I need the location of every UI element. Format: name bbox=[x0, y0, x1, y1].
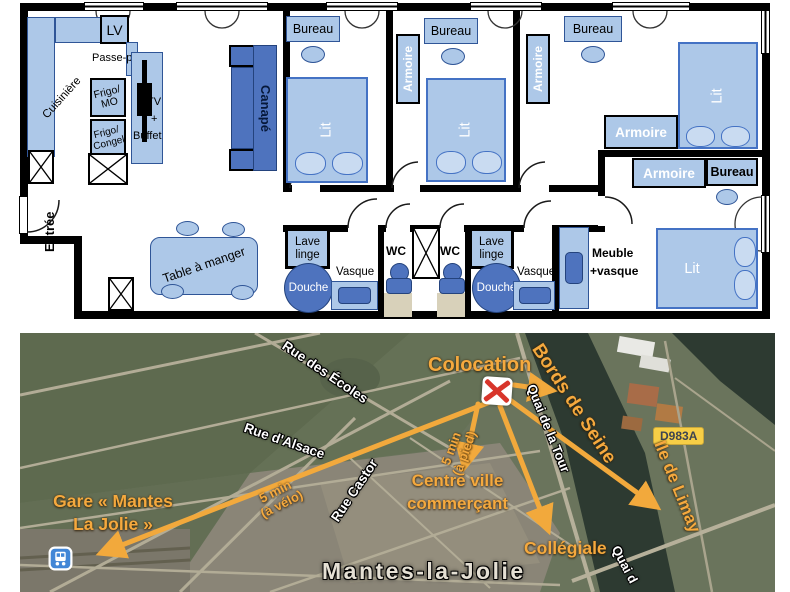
wardrobe-label: Armoire bbox=[401, 46, 415, 92]
desk-chair bbox=[581, 46, 605, 63]
pillow bbox=[686, 126, 715, 147]
desk-chair bbox=[716, 189, 738, 205]
window-bedroom3 bbox=[612, 2, 690, 11]
wardrobe-bedroom4: Armoire bbox=[632, 158, 706, 188]
poster-canvas: LV Passe-plat Cuisinière Frigo/MO Frigo/… bbox=[0, 0, 790, 592]
window-kitchen bbox=[84, 2, 144, 11]
desk-bedroom1: Bureau bbox=[286, 16, 340, 42]
vanity-label-line2: +vasque bbox=[590, 264, 638, 278]
wc2-floor-mat bbox=[437, 293, 465, 317]
pillow bbox=[436, 151, 466, 174]
wall-bottom bbox=[74, 311, 770, 319]
dishwasher-box: LV bbox=[100, 15, 129, 44]
wardrobe-label: Armoire bbox=[531, 46, 545, 92]
wall-bedroom2-left bbox=[386, 11, 393, 192]
dining-chair bbox=[176, 221, 199, 236]
column-kitchen-left bbox=[28, 150, 54, 184]
desk-chair bbox=[441, 48, 465, 65]
sofa-seat bbox=[231, 67, 255, 149]
orange-roof bbox=[627, 383, 659, 407]
fridge-freezer-label: Frigo/Congel bbox=[90, 124, 126, 152]
collegiale-label: Collégiale bbox=[524, 538, 607, 559]
kitchen-counter-vertical bbox=[27, 17, 55, 157]
train-station-icon bbox=[48, 546, 73, 571]
sink-basin-bathA bbox=[338, 287, 371, 304]
washer-label: Lavelinge bbox=[479, 236, 504, 261]
door-gap-bathA bbox=[348, 225, 378, 232]
sink-label-bathA: Vasque bbox=[336, 266, 374, 278]
tv-label: TV bbox=[147, 96, 161, 108]
door-gap-bedroom4 bbox=[598, 196, 605, 226]
window-bedroom1 bbox=[326, 2, 398, 11]
floor-plan: LV Passe-plat Cuisinière Frigo/MO Frigo/… bbox=[0, 0, 790, 330]
wc2-label: WC bbox=[440, 244, 460, 258]
window-bedroom2 bbox=[470, 2, 542, 11]
dining-chair bbox=[231, 285, 254, 300]
desk-bedroom4: Bureau bbox=[706, 158, 758, 186]
column-dining bbox=[108, 277, 134, 311]
dining-chair bbox=[161, 284, 184, 299]
wall-corridor-top bbox=[283, 185, 605, 192]
gare-label: Gare « MantesLa Jolie » bbox=[38, 490, 188, 536]
centre-ville-label: Centre villecommerçant bbox=[395, 469, 520, 515]
sofa-label: Canapé bbox=[258, 85, 273, 132]
bed-label: Lit bbox=[319, 122, 335, 137]
entry-label: Entrée bbox=[42, 212, 57, 252]
vanity-sink bbox=[565, 252, 583, 284]
wardrobe-bedroom3-tall: Armoire bbox=[526, 34, 550, 104]
shower-label: Douche bbox=[477, 282, 517, 294]
pillow bbox=[721, 126, 750, 147]
door-gap-bedroom1 bbox=[292, 185, 320, 192]
door-gap-bedroom3 bbox=[521, 185, 549, 192]
wardrobe-bedroom3-low: Armoire bbox=[604, 115, 678, 149]
tv-plus-label: + bbox=[151, 113, 157, 125]
bed-label: Lit bbox=[458, 122, 474, 137]
fridge-microwave-box: Frigo/MO bbox=[90, 78, 126, 117]
wardrobe-bedroom2: Armoire bbox=[396, 34, 420, 104]
wall-bedroom3-left bbox=[513, 11, 520, 192]
door-gap-bathB bbox=[524, 225, 552, 232]
vanity-label-line1: Meuble bbox=[592, 246, 633, 260]
wardrobe-label: Armoire bbox=[615, 125, 667, 140]
wall-bedroom4-top bbox=[598, 150, 762, 157]
fridge-microwave-label: Frigo/MO bbox=[92, 84, 123, 112]
desk-label: Bureau bbox=[710, 165, 753, 179]
pillow bbox=[295, 152, 326, 175]
location-x-marker bbox=[481, 376, 513, 406]
desk-label: Bureau bbox=[293, 22, 333, 36]
window-living bbox=[176, 2, 268, 11]
kitchen-counter-top bbox=[55, 17, 101, 43]
sink-basin-bathB bbox=[519, 287, 551, 304]
pillow bbox=[734, 237, 756, 267]
sofa-back: Canapé bbox=[253, 45, 277, 171]
wc1-label: WC bbox=[386, 244, 406, 258]
desk-bedroom3: Bureau bbox=[564, 16, 622, 42]
wc1-floor-mat bbox=[384, 293, 412, 317]
pillow bbox=[332, 152, 363, 175]
wc1-toilet-seat bbox=[386, 278, 412, 294]
pillow bbox=[734, 270, 756, 300]
buffet-label: Buffet bbox=[133, 130, 162, 142]
colocation-label: Colocation bbox=[428, 354, 531, 377]
bed-label: Lit bbox=[710, 88, 726, 103]
washer-label: Lavelinge bbox=[295, 236, 320, 261]
desk-bedroom2: Bureau bbox=[424, 18, 478, 44]
column-kitchen-mid bbox=[88, 153, 128, 185]
door-gap-bedroom2 bbox=[394, 185, 420, 192]
desk-label: Bureau bbox=[431, 24, 471, 38]
orange-roof bbox=[621, 416, 643, 432]
wardrobe-label: Armoire bbox=[643, 166, 695, 181]
sink-label-bathB: Vasque bbox=[517, 266, 555, 278]
pillow bbox=[472, 151, 502, 174]
city-name-label: Mantes-la-Jolie bbox=[322, 558, 526, 585]
dishwasher-label: LV bbox=[106, 22, 122, 38]
entry-door-leaf bbox=[19, 196, 28, 234]
wall-notch-v bbox=[74, 236, 82, 319]
door-gap-wc1 bbox=[386, 225, 410, 232]
shower-bathA: Douche bbox=[284, 263, 333, 313]
wc2-toilet-seat bbox=[439, 278, 465, 294]
window-right-bottom bbox=[761, 195, 770, 253]
door-gap-wc2 bbox=[440, 225, 464, 232]
window-right-top bbox=[761, 10, 770, 54]
bed-label: Lit bbox=[684, 261, 699, 277]
duct-between-wc bbox=[412, 227, 440, 279]
desk-chair bbox=[301, 46, 325, 63]
shower-label: Douche bbox=[289, 282, 329, 294]
dining-chair bbox=[222, 222, 245, 237]
desk-label: Bureau bbox=[573, 22, 613, 36]
